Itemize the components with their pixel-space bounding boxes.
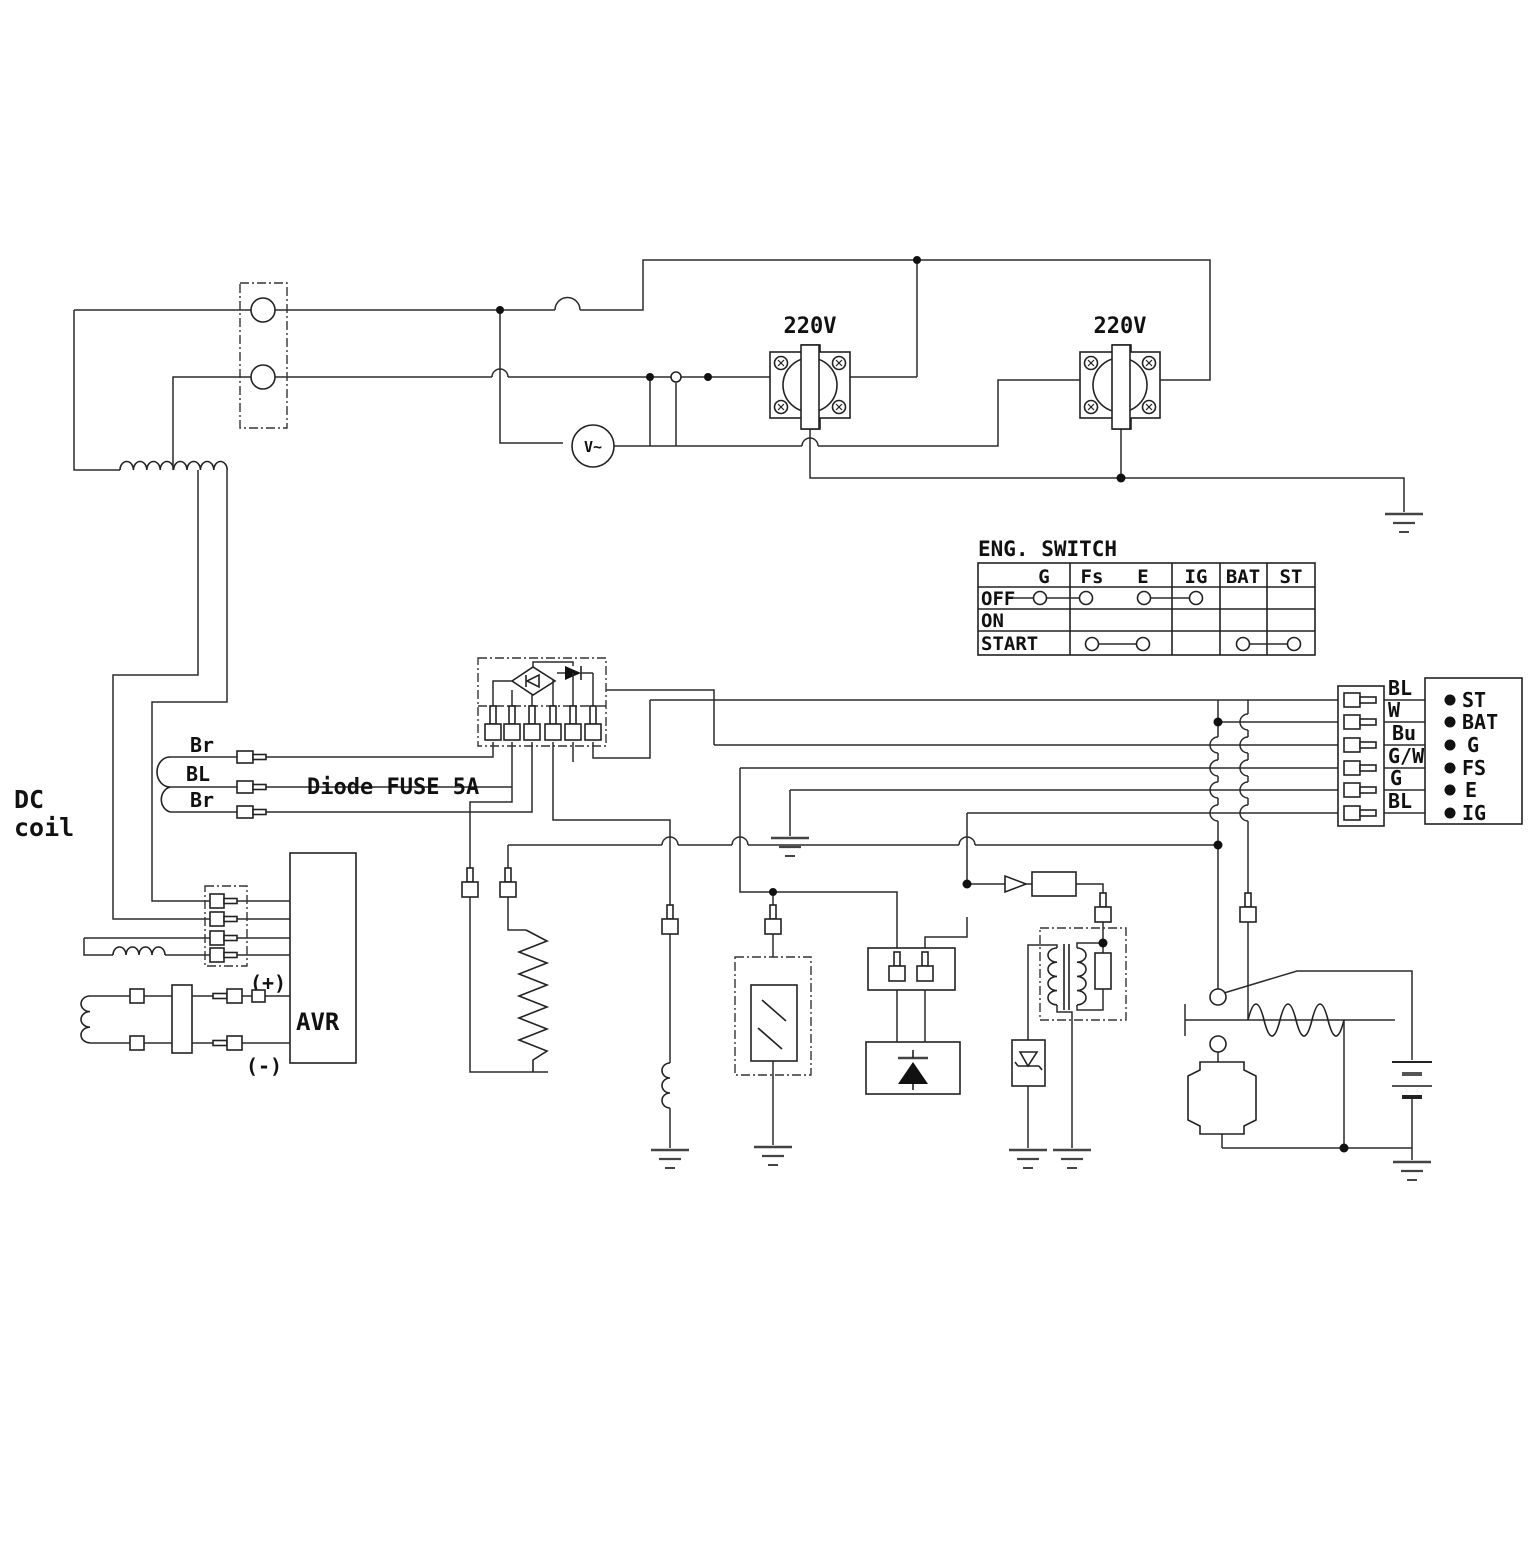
col-ig: IG xyxy=(1185,566,1208,588)
row-start: START xyxy=(981,633,1038,655)
voltmeter-label: V~ xyxy=(584,438,602,456)
col-bat: BAT xyxy=(1226,566,1260,588)
avr-label: AVR xyxy=(296,1008,340,1036)
col-st: ST xyxy=(1280,566,1303,588)
minus-label: (-) xyxy=(246,1054,282,1078)
ground-symbol xyxy=(651,1150,689,1168)
terminal-fs: FS xyxy=(1462,756,1486,780)
terminal-bat: BAT xyxy=(1462,710,1498,734)
row-on: ON xyxy=(981,610,1004,632)
cdi-unit xyxy=(866,948,960,1094)
plug-resistor-left xyxy=(462,868,478,897)
ground-symbol xyxy=(1385,514,1423,532)
dc-label-line1: DC xyxy=(14,785,44,814)
switch-contacts-off xyxy=(1014,592,1203,605)
zener-diode-box xyxy=(1012,1040,1045,1086)
wire-br-top-label: Br xyxy=(190,733,214,757)
terminal-st: ST xyxy=(1462,688,1486,712)
plug-resistor-right xyxy=(500,868,516,897)
avr-box: AVR (+) (-) xyxy=(246,853,356,1078)
dc-label-line2: coil xyxy=(14,813,74,842)
wire-label-bl1: BL xyxy=(1388,676,1412,700)
voltmeter: V~ xyxy=(572,425,614,467)
col-e: E xyxy=(1137,566,1148,588)
ground-symbol xyxy=(1053,1150,1091,1168)
ignition-feed-diode xyxy=(1005,872,1111,922)
outlet-2: 220V xyxy=(1080,314,1160,429)
schematic-canvas: V~ 220V 220V ENG. SWITCH G Fs E IG BAT xyxy=(0,0,1540,1541)
ground-symbol xyxy=(771,838,809,856)
wire-bl-label: BL xyxy=(186,762,210,786)
junction-dots xyxy=(496,256,1349,1153)
oil-sensor-unit xyxy=(735,905,811,1075)
eng-switch-title: ENG. SWITCH xyxy=(978,537,1117,561)
output-terminal-block xyxy=(240,283,287,428)
wire-br-bottom-label: Br xyxy=(190,788,214,812)
ground-symbol xyxy=(1009,1150,1047,1168)
switch-terminal-strip: ST BAT G FS E IG xyxy=(1425,678,1522,825)
wire-label-g: G xyxy=(1390,766,1402,790)
terminal-g: G xyxy=(1467,733,1479,757)
ignition-coil xyxy=(1040,928,1126,1020)
outlet1-voltage-label: 220V xyxy=(784,314,837,339)
outlet2-voltage-label: 220V xyxy=(1094,314,1147,339)
ground-symbol xyxy=(1393,1162,1431,1180)
diode-fuse-label: Diode FUSE 5A xyxy=(307,775,479,800)
avr-connector xyxy=(205,886,247,966)
ground-symbol xyxy=(754,1147,792,1165)
col-fs: Fs xyxy=(1081,566,1104,588)
wire-label-bu: Bu xyxy=(1392,721,1416,745)
wire-label-bl2: BL xyxy=(1388,789,1412,813)
wire-label-w: W xyxy=(1388,698,1401,722)
outlet-1: 220V xyxy=(770,314,850,429)
starter-motor xyxy=(1188,1062,1256,1134)
diode-fuse-module xyxy=(478,658,606,746)
terminal-e: E xyxy=(1465,778,1477,802)
eng-switch-table: ENG. SWITCH G Fs E IG BAT ST OFF ON STAR… xyxy=(978,537,1315,655)
plug-pulser-coil xyxy=(662,905,678,934)
col-g: G xyxy=(1038,566,1049,588)
battery xyxy=(1392,1062,1432,1097)
terminal-ig: IG xyxy=(1462,801,1486,825)
dc-coil-winding: DC coil Br BL Br Diode FUSE 5A xyxy=(14,733,479,842)
switch-contacts-start xyxy=(1086,638,1301,651)
row-off: OFF xyxy=(981,588,1015,610)
wire-label-gw: G/W xyxy=(1388,744,1425,768)
wiring-diagram-page: V~ 220V 220V ENG. SWITCH G Fs E IG BAT xyxy=(0,0,1540,1541)
right-connector: BL W Bu G/W G BL xyxy=(1240,676,1425,922)
